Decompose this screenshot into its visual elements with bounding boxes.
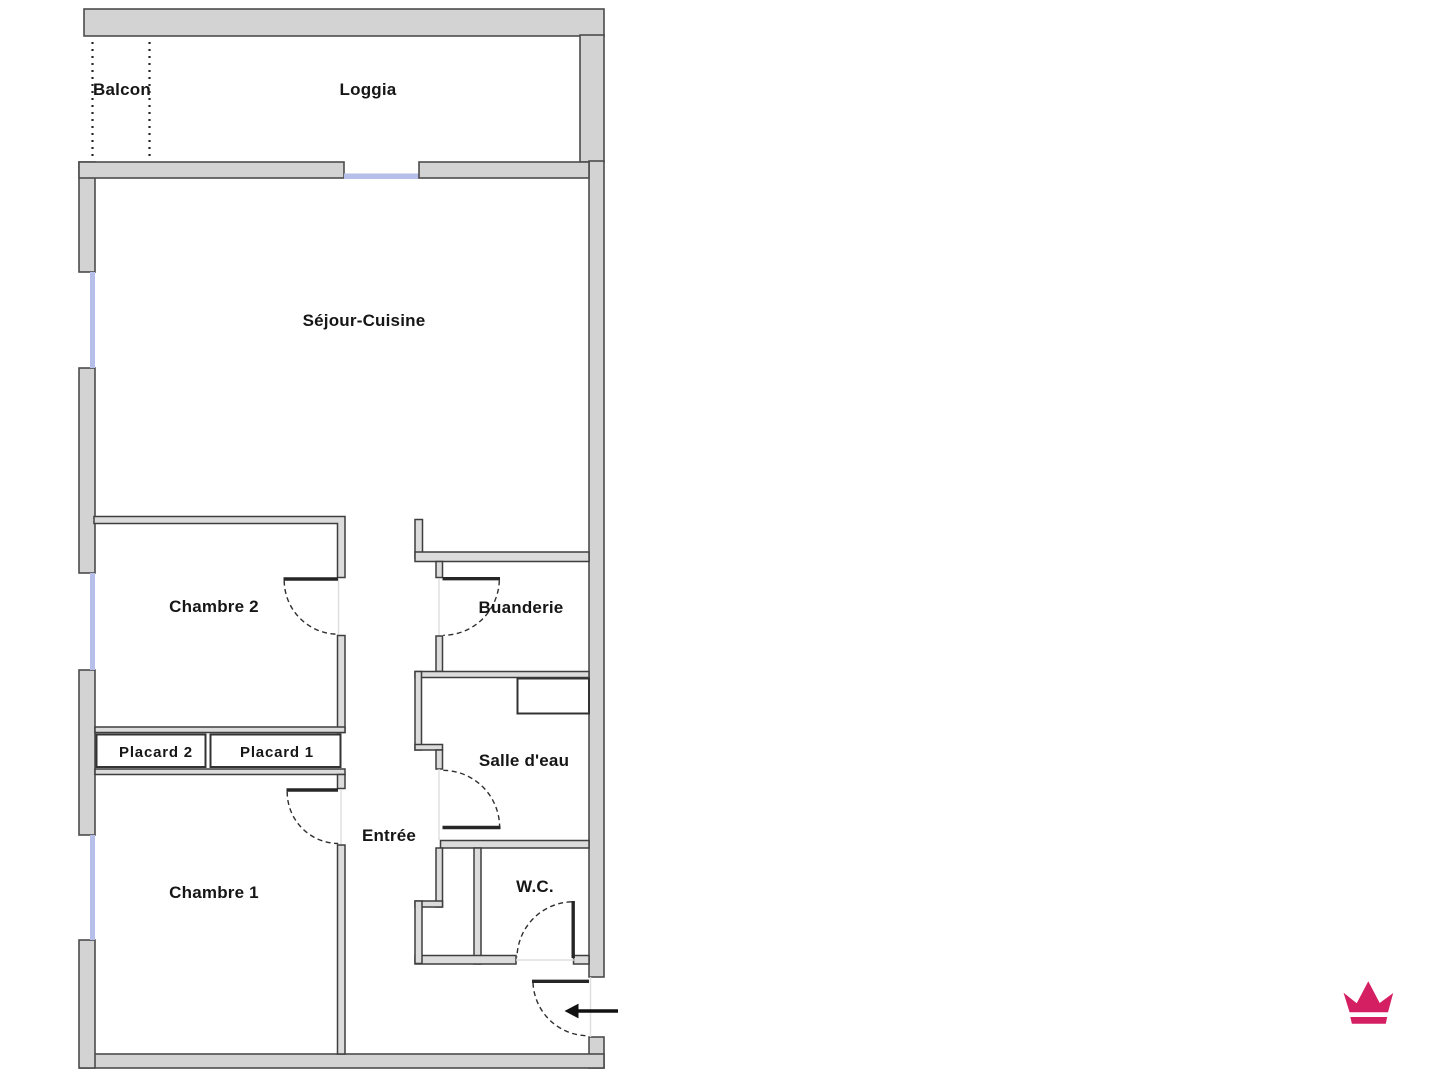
svg-text:Séjour-Cuisine: Séjour-Cuisine: [303, 311, 426, 330]
svg-text:Placard 1: Placard 1: [240, 744, 314, 761]
svg-text:Chambre 2: Chambre 2: [169, 597, 259, 616]
svg-text:Entrée: Entrée: [362, 826, 416, 845]
svg-text:Loggia: Loggia: [340, 80, 397, 99]
svg-text:Chambre 1: Chambre 1: [169, 883, 259, 902]
svg-text:Buanderie: Buanderie: [479, 598, 564, 617]
svg-text:Salle d'eau: Salle d'eau: [479, 751, 569, 770]
svg-text:W.C.: W.C.: [516, 877, 554, 896]
svg-text:Balcon: Balcon: [93, 80, 151, 99]
svg-text:Placard 2: Placard 2: [119, 744, 193, 761]
